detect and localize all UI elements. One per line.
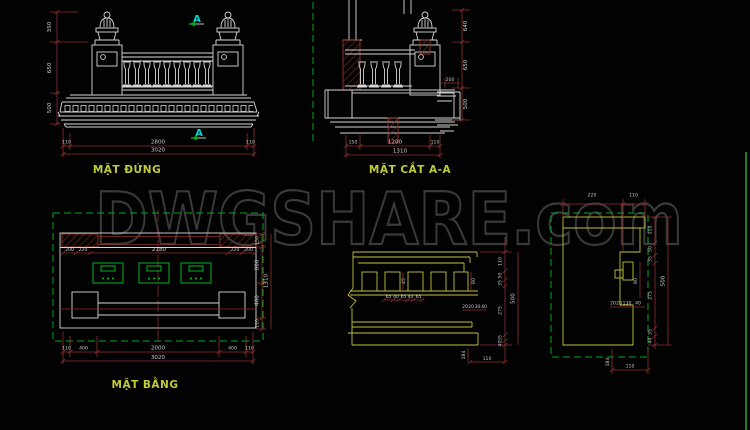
dim-label: 110 bbox=[245, 346, 254, 352]
dim-label: 110 bbox=[483, 356, 492, 362]
dim-label: 200 bbox=[446, 77, 455, 83]
dim-label: 220 bbox=[588, 193, 597, 199]
dim-label: 110 bbox=[62, 346, 71, 352]
dim-label: 40 bbox=[498, 341, 504, 347]
dim-label: 110 bbox=[629, 193, 638, 199]
elevation-view bbox=[58, 12, 259, 127]
dim-label: 65 bbox=[386, 294, 392, 300]
dim-label: 220 bbox=[79, 247, 88, 253]
section-marker-bottom: A bbox=[191, 128, 206, 141]
dim-label: 40 bbox=[635, 301, 641, 307]
dim-label: 275 bbox=[498, 306, 504, 315]
dim-label: 110 bbox=[431, 140, 440, 146]
dim-label: 1310 bbox=[264, 273, 270, 288]
dim-label: 40 bbox=[481, 304, 487, 310]
dim-label: 500 bbox=[463, 98, 469, 109]
cad-drawing: DWGSHARE.com 350 650 500 110 2800 110 30… bbox=[0, 0, 750, 430]
dim-label: 650 bbox=[463, 59, 469, 70]
section-title: MẶT CẮT A-A bbox=[369, 161, 452, 176]
dim-label: 500 bbox=[661, 275, 667, 286]
elevation-title: MẶT ĐỨNG bbox=[93, 162, 161, 176]
dim-label: 40 bbox=[408, 294, 414, 300]
cad-drawing-canvas: DWGSHARE.com 350 650 500 110 2800 110 30… bbox=[0, 0, 750, 430]
dim-label: 65 bbox=[416, 294, 422, 300]
dim-label: 220 bbox=[231, 247, 240, 253]
dim-label: 65 bbox=[401, 294, 407, 300]
dim-label: 150 bbox=[255, 236, 261, 245]
dim-label: 30 bbox=[475, 304, 481, 310]
dim-label: 200 bbox=[244, 247, 253, 253]
dim-label: 80 bbox=[471, 278, 477, 284]
dim-label: 1310 bbox=[393, 149, 408, 155]
dim-label: 184 bbox=[461, 351, 467, 360]
dim-label: 50 bbox=[648, 246, 654, 252]
dim-label: 500 bbox=[511, 293, 517, 304]
dim-label: 275 bbox=[648, 291, 654, 300]
dim-label: 400 bbox=[255, 295, 261, 306]
dim-label: 35 bbox=[498, 335, 504, 341]
dim-label: 35 bbox=[498, 280, 504, 286]
dim-label: 650 bbox=[47, 62, 53, 73]
dim-label: 3020 bbox=[151, 148, 166, 154]
dim-label: 2800 bbox=[151, 140, 166, 146]
dim-label: 110 bbox=[246, 140, 255, 146]
dim-label: 500 bbox=[47, 102, 53, 113]
dim-label: 80 bbox=[633, 278, 639, 284]
dim-label: 110 bbox=[62, 140, 71, 146]
plan-title: MẶT BẰNG bbox=[112, 376, 179, 391]
dim-label: 640 bbox=[463, 20, 469, 31]
dim-label: 400 bbox=[79, 346, 88, 352]
watermark-text: DWGSHARE.com bbox=[95, 177, 683, 261]
dim-label: 350 bbox=[47, 21, 53, 32]
dim-label: 200 bbox=[65, 247, 74, 253]
dim-label: 20 bbox=[468, 304, 474, 310]
dim-label: 40 bbox=[393, 294, 399, 300]
section-view bbox=[313, 0, 462, 143]
dim-label: 130 bbox=[623, 301, 632, 307]
dim-label: 35 bbox=[648, 329, 654, 335]
dim-label: 45 bbox=[401, 278, 407, 284]
dim-label: 2180 bbox=[152, 247, 167, 253]
dim-label: 50 bbox=[498, 273, 504, 279]
section-dimensions bbox=[344, 8, 470, 158]
dim-label: 2000 bbox=[151, 346, 166, 352]
dim-label: 110 bbox=[626, 364, 635, 370]
dim-label: 20 bbox=[616, 301, 622, 307]
dim-label: 110 bbox=[648, 226, 654, 235]
dim-label: 110 bbox=[255, 319, 261, 328]
dim-label: 800 bbox=[255, 259, 261, 270]
dim-label: 400 bbox=[228, 346, 237, 352]
dim-label: 40 bbox=[648, 338, 654, 344]
dim-label: 35 bbox=[648, 256, 654, 262]
dim-label: 110 bbox=[498, 257, 504, 266]
dim-label: 1200 bbox=[388, 140, 403, 146]
dim-label: 3020 bbox=[151, 355, 166, 361]
section-marker-top: A bbox=[189, 14, 204, 27]
dim-label: 150 bbox=[349, 140, 358, 146]
dim-label: 184 bbox=[605, 358, 611, 367]
